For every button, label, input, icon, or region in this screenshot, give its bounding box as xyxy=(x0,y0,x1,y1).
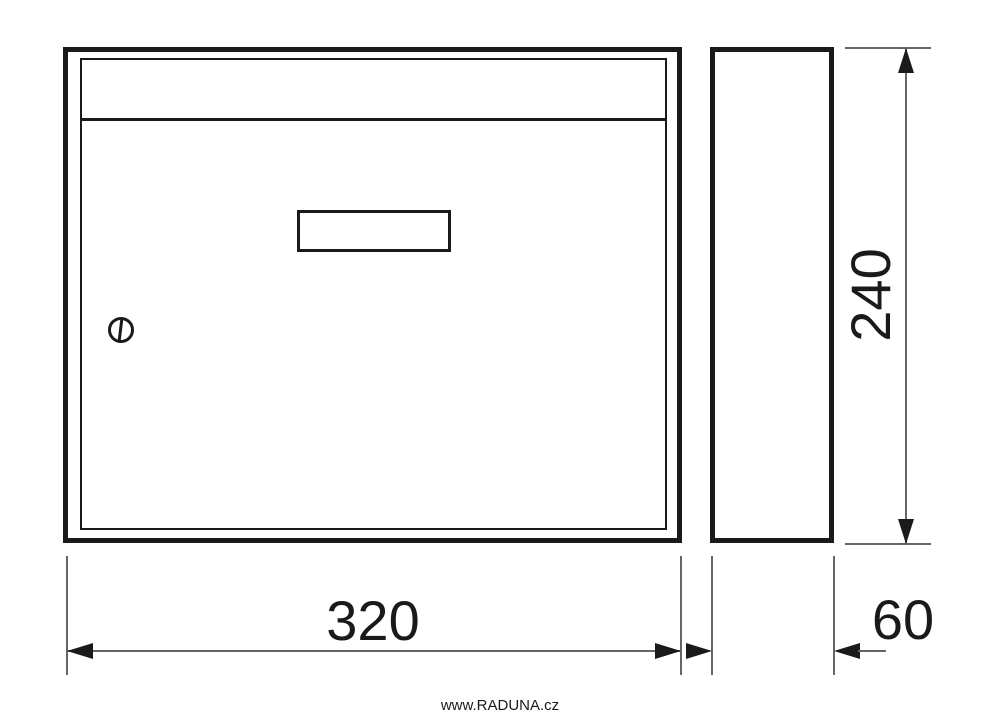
arrow-left-icon xyxy=(834,643,860,659)
height-extension-line-top xyxy=(845,47,931,49)
mail-slot-flap-line xyxy=(81,118,666,121)
watermark-text: www.RADUNA.cz xyxy=(0,697,1000,714)
arrow-right-icon xyxy=(686,643,712,659)
height-extension-line-bottom xyxy=(845,543,931,545)
side-view-outline xyxy=(710,47,834,543)
depth-dimension-label: 60 xyxy=(872,592,934,648)
height-dimension-line xyxy=(905,49,907,543)
technical-drawing-canvas: 240 320 60 www.RADUNA.cz xyxy=(0,0,1000,725)
arrow-left-icon xyxy=(67,643,93,659)
height-dimension-label: 240 xyxy=(843,248,899,341)
width-dimension-label: 320 xyxy=(326,593,419,649)
arrow-down-icon xyxy=(898,519,914,544)
arrow-right-icon xyxy=(655,643,681,659)
name-plate xyxy=(297,210,451,252)
arrow-up-icon xyxy=(898,48,914,73)
front-view-door-panel xyxy=(80,58,667,530)
